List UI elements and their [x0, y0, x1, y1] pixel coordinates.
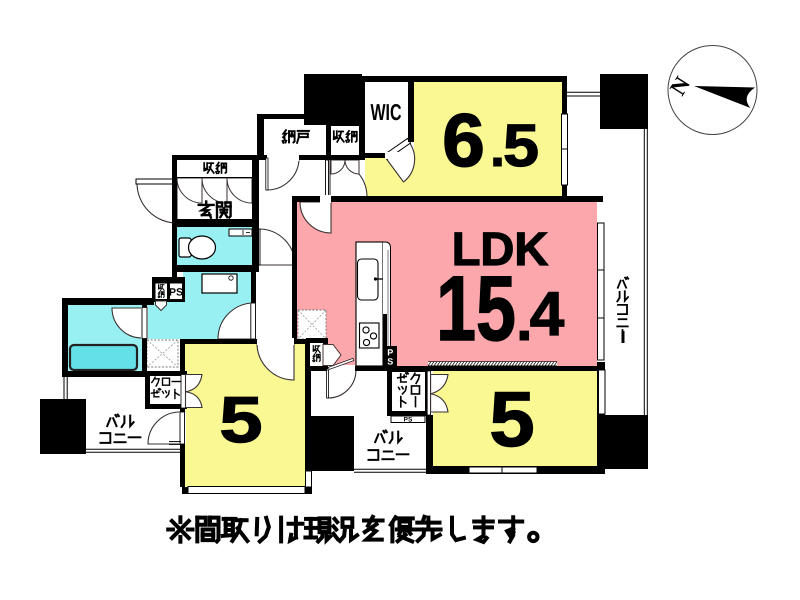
svg-text:15: 15 — [436, 258, 516, 360]
svg-text:5: 5 — [489, 375, 535, 463]
svg-text:WIC: WIC — [371, 99, 402, 125]
svg-text:5: 5 — [503, 112, 539, 179]
svg-text:6: 6 — [442, 98, 485, 182]
svg-text:5: 5 — [219, 383, 262, 456]
svg-text:S: S — [387, 357, 393, 367]
svg-text:PS: PS — [169, 287, 183, 299]
svg-text:PS: PS — [404, 416, 413, 423]
svg-text:4: 4 — [530, 280, 565, 349]
